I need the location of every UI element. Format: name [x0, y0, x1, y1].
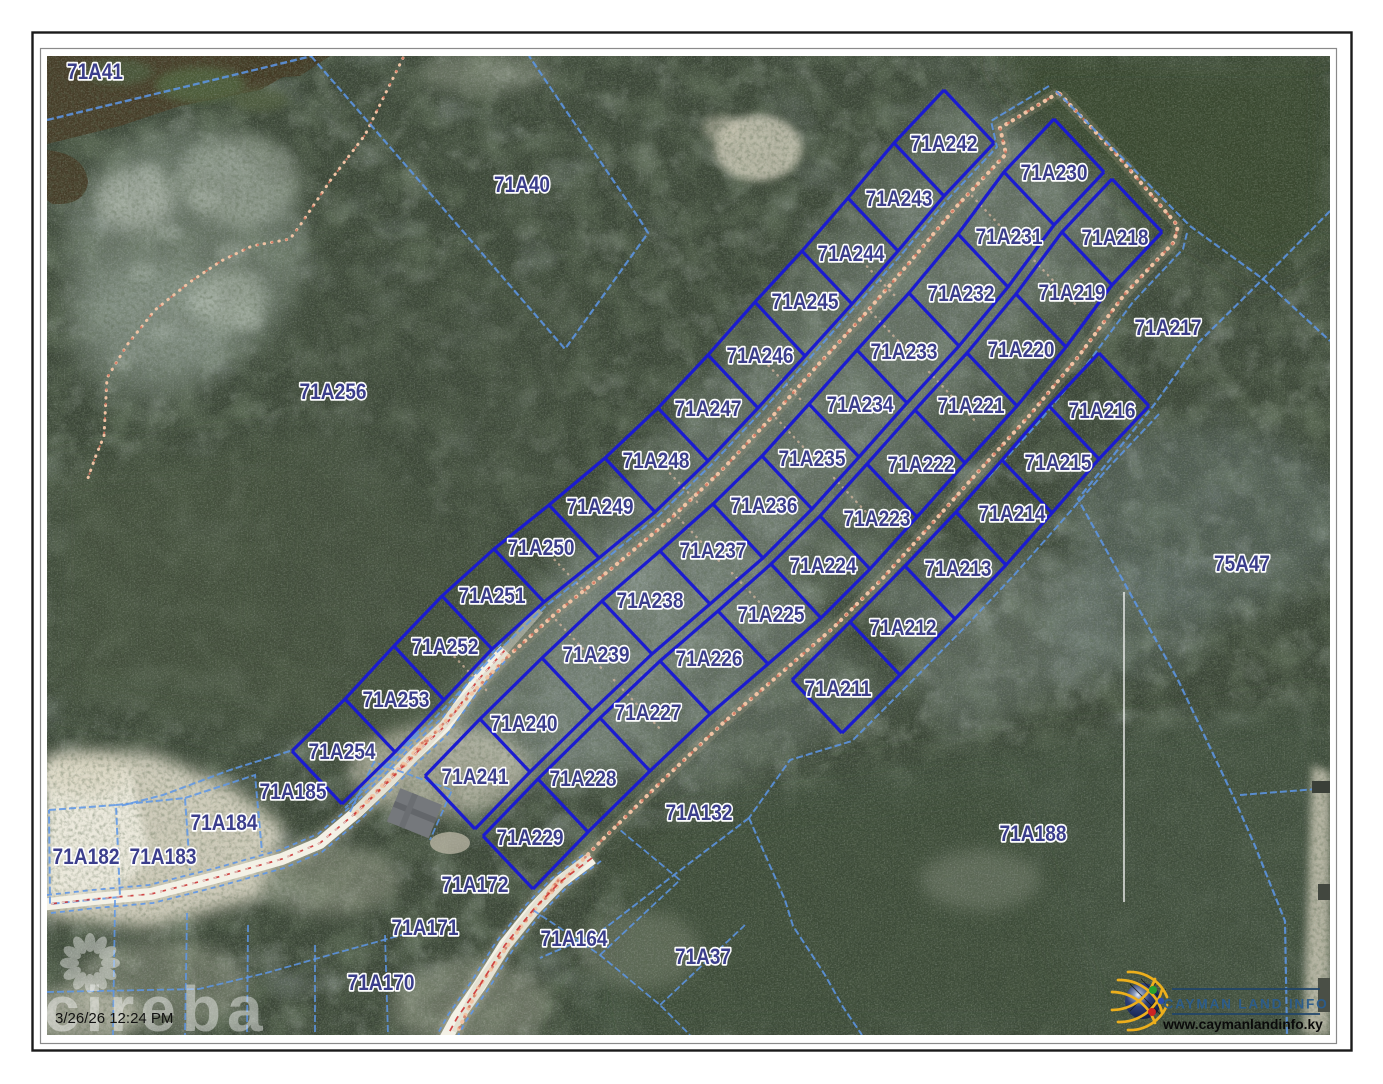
svg-text:71A243: 71A243 — [866, 186, 933, 211]
svg-text:71A218: 71A218 — [1082, 225, 1149, 250]
svg-text:71A214: 71A214 — [979, 501, 1047, 526]
svg-text:71A37: 71A37 — [675, 944, 731, 969]
svg-text:71A231: 71A231 — [976, 224, 1043, 249]
svg-text:75A47: 75A47 — [1214, 551, 1270, 576]
svg-text:71A238: 71A238 — [617, 588, 684, 613]
svg-text:71A216: 71A216 — [1069, 398, 1136, 423]
svg-text:71A249: 71A249 — [567, 494, 634, 519]
svg-text:71A233: 71A233 — [871, 339, 938, 364]
svg-text:71A182: 71A182 — [53, 844, 120, 869]
svg-text:71A241: 71A241 — [442, 764, 509, 789]
svg-text:71A250: 71A250 — [508, 535, 575, 560]
svg-text:cireba: cireba — [44, 973, 269, 1045]
svg-text:71A252: 71A252 — [412, 634, 479, 659]
svg-text:CAYMAN LAND INFO: CAYMAN LAND INFO — [1164, 997, 1329, 1012]
svg-text:71A217: 71A217 — [1135, 315, 1202, 340]
svg-text:71A237: 71A237 — [680, 538, 747, 563]
svg-text:71A245: 71A245 — [772, 289, 839, 314]
svg-text:71A225: 71A225 — [738, 602, 805, 627]
svg-text:www.caymanlandinfo.ky: www.caymanlandinfo.ky — [1162, 1017, 1323, 1032]
svg-text:71A235: 71A235 — [779, 446, 846, 471]
svg-text:71A183: 71A183 — [130, 844, 197, 869]
svg-text:71A244: 71A244 — [818, 241, 886, 266]
svg-text:71A246: 71A246 — [727, 343, 794, 368]
svg-text:71A227: 71A227 — [615, 700, 682, 725]
svg-text:71A219: 71A219 — [1039, 280, 1106, 305]
svg-text:71A232: 71A232 — [928, 281, 995, 306]
svg-text:71A248: 71A248 — [623, 448, 690, 473]
svg-text:71A254: 71A254 — [309, 739, 377, 764]
svg-text:71A251: 71A251 — [459, 583, 526, 608]
svg-text:71A171: 71A171 — [392, 915, 459, 940]
svg-text:71A240: 71A240 — [491, 711, 558, 736]
svg-text:71A253: 71A253 — [363, 687, 430, 712]
svg-text:71A236: 71A236 — [731, 493, 798, 518]
svg-text:71A247: 71A247 — [675, 396, 742, 421]
svg-text:71A164: 71A164 — [541, 926, 609, 951]
svg-text:71A41: 71A41 — [67, 59, 123, 84]
svg-text:71A220: 71A220 — [988, 337, 1055, 362]
svg-text:3/26/26 12:24 PM: 3/26/26 12:24 PM — [55, 1010, 173, 1027]
svg-text:71A224: 71A224 — [790, 553, 858, 578]
svg-text:71A234: 71A234 — [827, 392, 895, 417]
svg-text:71A188: 71A188 — [1000, 821, 1067, 846]
svg-text:71A185: 71A185 — [260, 779, 327, 804]
svg-text:71A184: 71A184 — [191, 810, 259, 835]
svg-text:71A256: 71A256 — [300, 379, 367, 404]
svg-text:71A221: 71A221 — [938, 393, 1005, 418]
svg-text:71A230: 71A230 — [1021, 160, 1088, 185]
svg-text:71A215: 71A215 — [1025, 450, 1092, 475]
svg-text:71A132: 71A132 — [666, 800, 733, 825]
svg-text:71A212: 71A212 — [870, 615, 937, 640]
svg-text:71A40: 71A40 — [494, 172, 550, 197]
svg-text:71A170: 71A170 — [348, 970, 415, 995]
svg-text:71A228: 71A228 — [550, 766, 617, 791]
svg-text:71A213: 71A213 — [925, 556, 992, 581]
svg-text:71A242: 71A242 — [911, 131, 978, 156]
svg-text:71A223: 71A223 — [844, 506, 911, 531]
svg-text:71A229: 71A229 — [497, 825, 564, 850]
svg-text:71A222: 71A222 — [888, 452, 955, 477]
svg-text:71A172: 71A172 — [442, 872, 509, 897]
svg-text:71A226: 71A226 — [676, 646, 743, 671]
svg-text:71A211: 71A211 — [805, 676, 872, 701]
svg-text:71A239: 71A239 — [563, 642, 630, 667]
